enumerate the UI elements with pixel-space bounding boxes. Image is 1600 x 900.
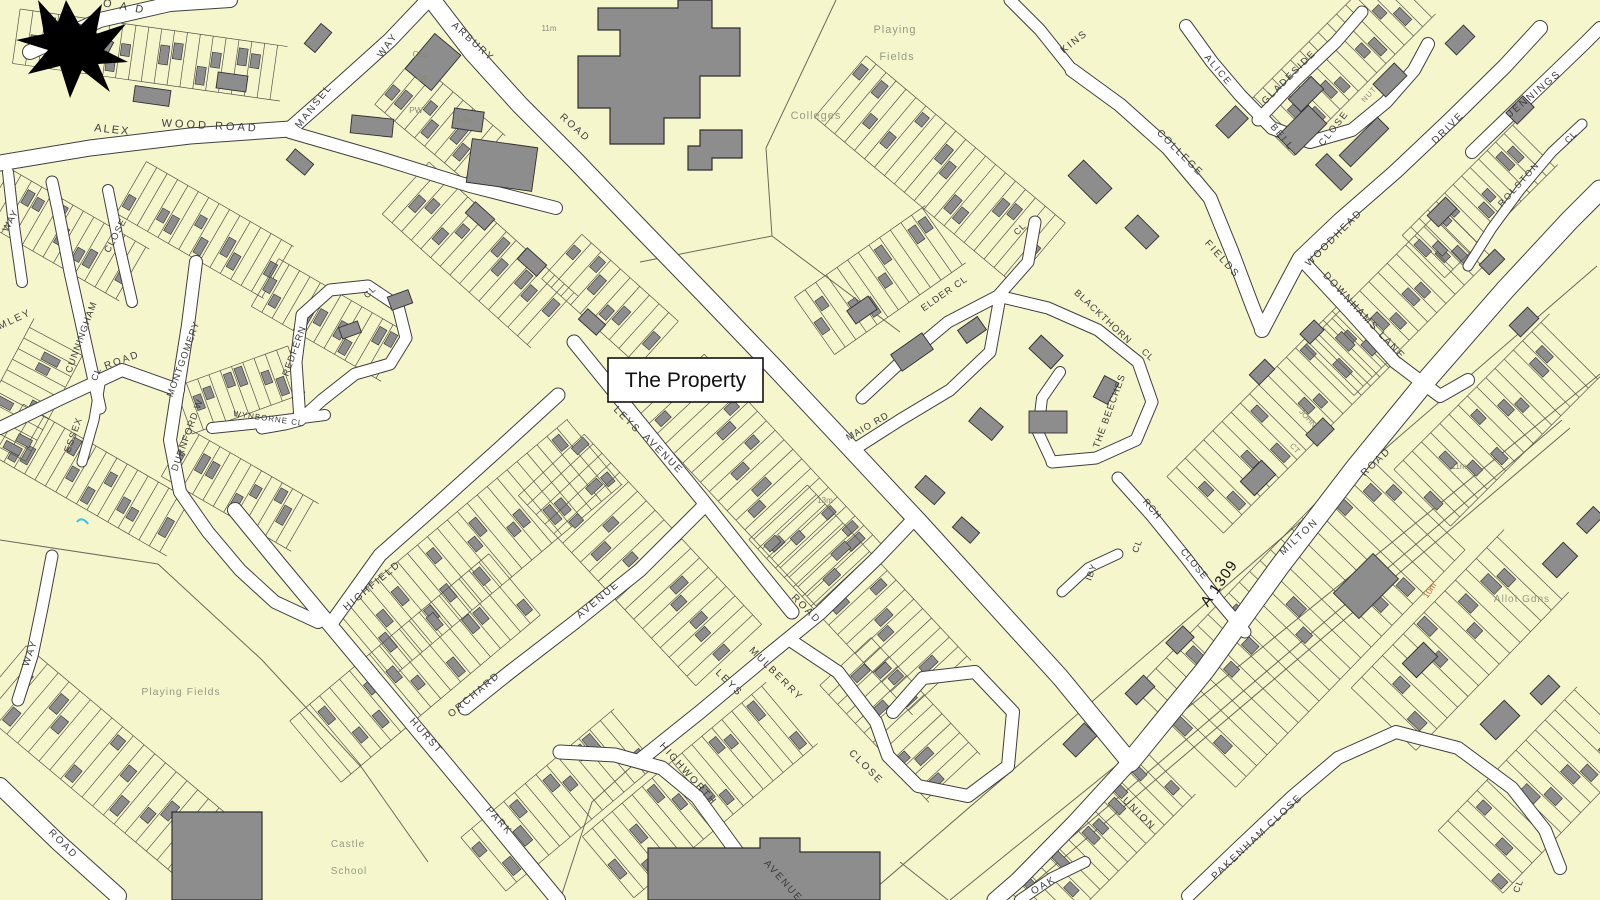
map-label: Fields <box>879 51 914 63</box>
map-canvas[interactable]: O A DALEXWOOD ROADMANSELWAYARBURYROADCou… <box>0 0 1600 900</box>
map-label: Off <box>417 74 428 83</box>
building <box>466 139 537 192</box>
building <box>350 115 394 137</box>
property-callout-label: The Property <box>625 369 747 392</box>
map-label: School <box>331 866 368 877</box>
map-label: Cou <box>413 50 428 59</box>
map-label: Liby <box>457 114 473 124</box>
building-corner-building <box>172 812 262 900</box>
building <box>1029 411 1067 433</box>
map-label: 13m <box>817 496 833 505</box>
map-label: Castle <box>331 839 365 850</box>
map-label: Allot Gdns <box>1494 594 1550 605</box>
map-label: 11m <box>542 24 557 33</box>
map-label: Playing Fields <box>141 686 220 698</box>
map-viewport[interactable]: O A DALEXWOOD ROADMANSELWAYARBURYROADCou… <box>0 0 1600 900</box>
map-label: Playing <box>873 24 916 36</box>
map-label: Colleges <box>791 110 842 122</box>
property-callout: The Property <box>608 358 763 402</box>
map-label: 11m <box>1452 462 1467 471</box>
map-label: PW <box>409 105 423 115</box>
